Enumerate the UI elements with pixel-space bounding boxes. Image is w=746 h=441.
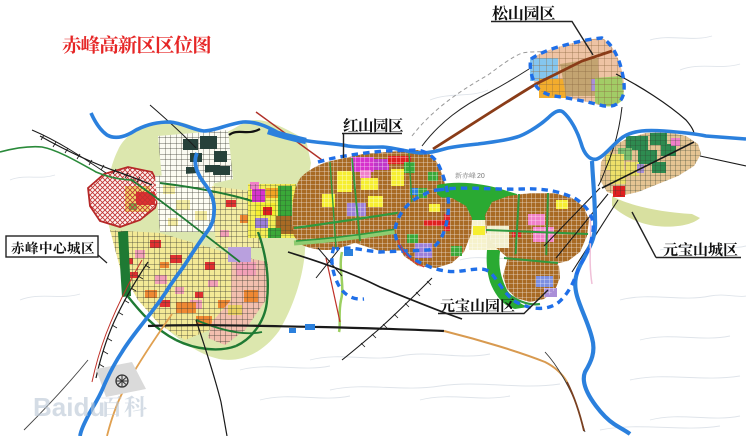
svg-text:Baidu: Baidu [33,392,105,422]
svg-text:20: 20 [477,173,485,180]
